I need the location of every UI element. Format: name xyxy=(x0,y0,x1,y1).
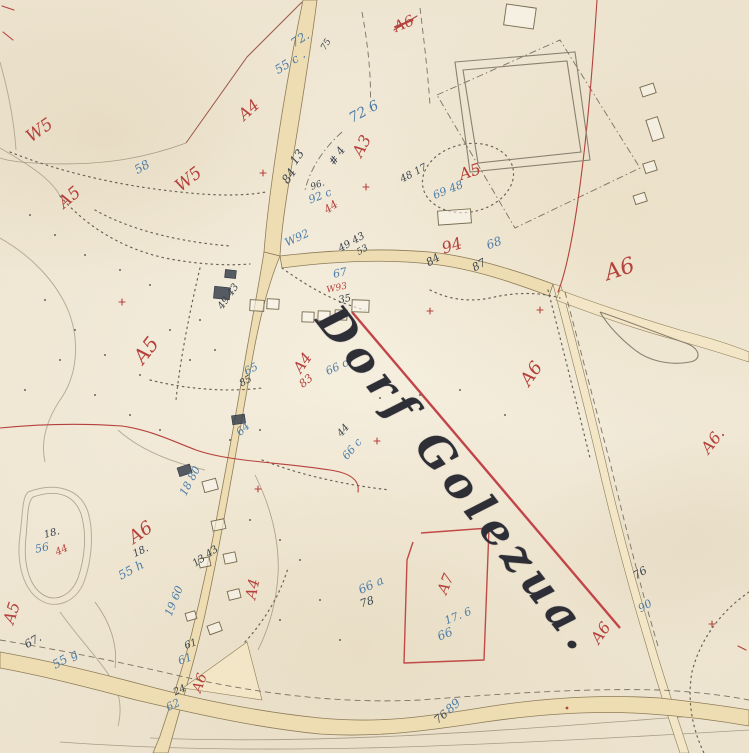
map-label: 67 xyxy=(332,266,348,280)
map-label: 56 xyxy=(34,541,50,555)
map-label: 18. xyxy=(132,544,151,560)
map-label: 84 xyxy=(424,252,442,269)
map-label: 89 xyxy=(443,696,462,715)
map-label: A6 xyxy=(190,672,210,695)
map-label: A4 xyxy=(244,577,263,600)
map-label: 68 xyxy=(485,235,503,252)
map-label: 84 xyxy=(280,166,299,185)
map-label: 62 xyxy=(164,697,181,713)
map-label: 72. xyxy=(289,29,312,49)
cadastral-map: W5A4W5A5A6A3A5A6A6A5A4834494A6.A6A5A4A7A… xyxy=(0,0,749,753)
map-label: 55 g xyxy=(50,647,79,671)
map-label: A6 xyxy=(392,13,417,35)
map-label: A6 xyxy=(588,620,614,647)
map-label: 13 xyxy=(288,147,307,166)
map-label: 96. xyxy=(310,179,327,192)
map-label: 17. 6 xyxy=(443,606,473,627)
map-label: 92 c xyxy=(307,186,333,205)
map-label: 55 c . xyxy=(273,48,308,76)
map-label: 78 xyxy=(359,595,376,610)
map-label: A6 xyxy=(518,359,547,389)
map-label: 66 xyxy=(436,626,455,643)
map-label: 24 xyxy=(172,684,188,698)
map-label: A6. xyxy=(698,426,727,457)
map-label: A5 xyxy=(56,184,85,212)
map-label: A7 xyxy=(435,572,457,597)
map-label: A3 xyxy=(350,133,374,160)
map-label: 18. xyxy=(43,527,61,541)
map-label: A5 xyxy=(130,333,162,367)
map-label: 13 43 xyxy=(191,545,220,570)
map-label: 65 xyxy=(242,361,260,377)
map-label: 44 xyxy=(336,423,352,439)
map-label: A6 xyxy=(602,255,637,285)
map-label: 90 xyxy=(636,598,654,615)
map-label: 66 a xyxy=(357,574,386,596)
annotation-layer: W5A4W5A5A6A3A5A6A6A5A4834494A6.A6A5A4A7A… xyxy=(0,0,749,753)
map-label: 83 xyxy=(297,372,315,389)
map-label: # 4 xyxy=(327,145,347,167)
map-label: W92 xyxy=(283,228,311,249)
map-label: 75 xyxy=(320,38,334,52)
map-label: A5 xyxy=(1,600,23,626)
map-label: 44 xyxy=(322,198,340,215)
map-label: 35 xyxy=(338,294,353,306)
map-label: 85 xyxy=(238,375,254,390)
map-label: A6 xyxy=(126,519,156,548)
map-label: 55 h xyxy=(116,558,145,581)
map-label: A4 xyxy=(236,97,263,123)
map-label: 66 c xyxy=(340,436,364,461)
map-label: 67. xyxy=(23,632,44,650)
map-label: 76 xyxy=(631,565,649,582)
map-label: A4 xyxy=(291,350,315,375)
map-label: 72 6 xyxy=(347,99,381,126)
map-label: 18 80 xyxy=(178,465,203,498)
map-label: 49 43 xyxy=(337,232,367,255)
map-label: W5 xyxy=(24,116,57,146)
map-label: A5 xyxy=(457,161,483,183)
map-label: W5 xyxy=(173,165,206,196)
map-label: 53 xyxy=(356,244,370,258)
map-label: 44 xyxy=(54,544,70,558)
map-label: 87 xyxy=(470,257,488,274)
map-label: 69 48 xyxy=(431,179,464,201)
map-label: 61 xyxy=(177,651,194,666)
map-label: 64 xyxy=(234,420,252,438)
map-label: W93 xyxy=(326,282,348,295)
map-label: 94 xyxy=(440,235,464,257)
map-label: 19 60 xyxy=(163,584,185,617)
map-label: 49 43 xyxy=(217,282,242,311)
map-label: 66 c xyxy=(324,357,350,377)
map-label: 61 xyxy=(183,638,198,652)
map-label: 58 xyxy=(132,158,151,176)
map-label: 76 xyxy=(432,708,450,725)
map-label: 48 17 xyxy=(399,163,429,185)
